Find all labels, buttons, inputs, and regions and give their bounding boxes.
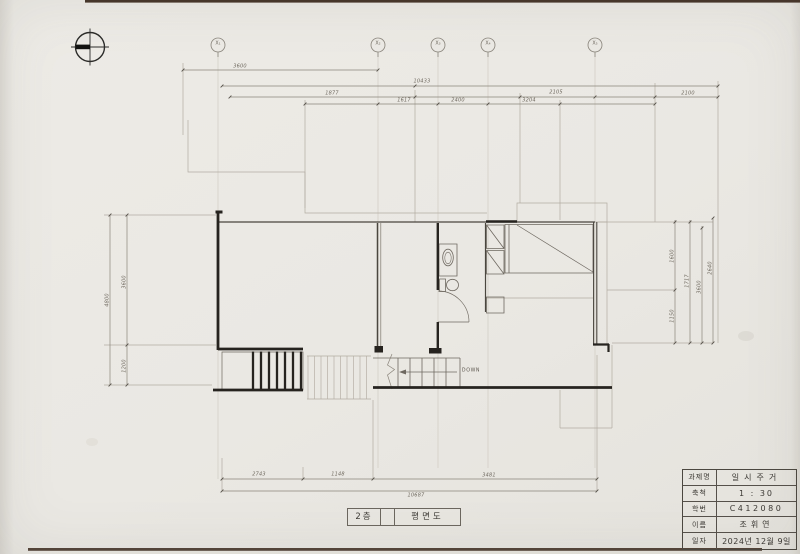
title-block-value: 2024년 12월 9일 xyxy=(717,533,796,549)
dim-top-3600: 3600 xyxy=(233,65,247,70)
plan-title-box: 2층 평면도 xyxy=(347,508,461,526)
title-block-value: 1 : 30 xyxy=(717,486,796,501)
grid-label-x3: X₃ xyxy=(435,43,440,48)
dim-top-10433: 10433 xyxy=(414,80,431,85)
title-block-label: 이름 xyxy=(683,517,717,532)
dim-right-3600: 3600 xyxy=(697,280,702,294)
title-block-label: 축척 xyxy=(683,486,717,501)
title-block: 과제명 일시주거 축척 1 : 30 학번 C412080 이름 조휘연 일자 … xyxy=(682,469,797,550)
interior-walls xyxy=(218,222,597,346)
title-block-row-date: 일자 2024년 12월 9일 xyxy=(683,533,796,549)
exterior-walls xyxy=(213,211,612,391)
dim-top-2105: 2105 xyxy=(549,91,563,96)
dim-bottom-10687: 10687 xyxy=(408,494,425,499)
north-symbol-icon xyxy=(71,29,109,66)
dim-bottom-3481: 3481 xyxy=(482,474,496,479)
dim-top-2400: 2400 xyxy=(451,99,465,104)
stair-direction-arrowhead xyxy=(399,370,406,375)
title-block-label: 학번 xyxy=(683,502,717,517)
title-block-value: 일시주거 xyxy=(717,470,796,485)
title-block-label: 과제명 xyxy=(683,470,717,485)
grid-label-x2: X₂ xyxy=(375,43,380,48)
title-block-value: 조휘연 xyxy=(717,517,796,532)
grid-label-x1: X₁ xyxy=(215,43,220,48)
dim-top-1617: 1617 xyxy=(397,99,411,104)
grid-marker-circles xyxy=(211,38,602,57)
stair-down-label: DOWN xyxy=(462,369,480,374)
title-block-label: 일자 xyxy=(683,533,717,549)
dim-bottom-2743: 2743 xyxy=(252,473,266,478)
grid-label-x5: X₅ xyxy=(592,43,597,48)
dimension-lines xyxy=(110,70,718,491)
floor-plan-linework xyxy=(0,0,800,554)
dim-left-3600: 3600 xyxy=(122,275,127,289)
title-block-row-name: 이름 조휘연 xyxy=(683,517,796,533)
scanned-floor-plan-sheet: X₁ X₂ X₃ X₄ X₅ 3600 10433 1877 2105 2100… xyxy=(0,0,800,554)
plan-title-spacer xyxy=(381,509,395,525)
dim-right-1150: 1150 xyxy=(670,309,675,323)
title-block-value: C412080 xyxy=(717,502,796,517)
dim-top-3204: 3204 xyxy=(522,99,536,104)
plan-title-text: 평면도 xyxy=(395,509,460,525)
dim-left-1200: 1200 xyxy=(122,359,127,373)
dimension-ticks xyxy=(109,69,720,493)
plan-title-floor: 2층 xyxy=(348,509,381,525)
dim-right-1717: 1717 xyxy=(685,274,690,288)
dim-top-1877: 1877 xyxy=(325,92,339,97)
dim-right-1600: 1600 xyxy=(670,249,675,263)
construction-lines xyxy=(104,63,718,491)
title-block-row-student-id: 학번 C412080 xyxy=(683,502,796,518)
grid-label-x4: X₄ xyxy=(485,43,490,48)
dim-bottom-1148: 1148 xyxy=(331,473,345,478)
dim-right-2640: 2640 xyxy=(708,261,713,275)
title-block-row-scale: 축척 1 : 30 xyxy=(683,486,796,502)
grid-extension-lines xyxy=(218,57,595,479)
title-block-row-project: 과제명 일시주거 xyxy=(683,470,796,486)
dim-left-4800: 4800 xyxy=(106,293,111,307)
dim-top-2100: 2100 xyxy=(681,92,695,97)
